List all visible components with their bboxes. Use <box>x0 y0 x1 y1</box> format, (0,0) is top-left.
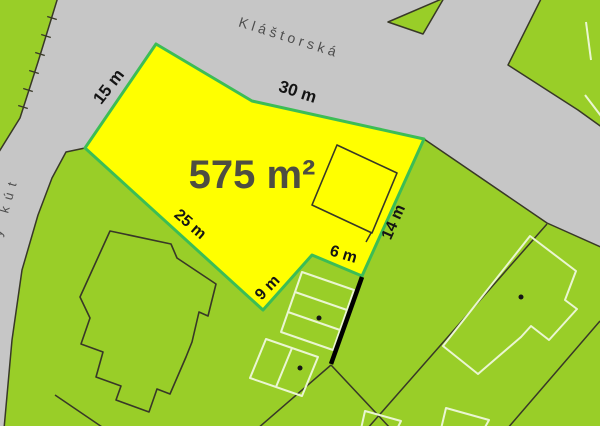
cadastral-map[interactable]: Kláštorská y kút 575 m² 30 m 15 m 25 m 1… <box>0 0 600 426</box>
parcel-area-label: 575 m² <box>189 153 316 197</box>
building-center-dot <box>519 295 524 300</box>
building-center-dot <box>317 316 322 321</box>
cadastral-map-view: Kláštorská y kút 575 m² 30 m 15 m 25 m 1… <box>0 0 600 426</box>
building-center-dot <box>298 366 303 371</box>
